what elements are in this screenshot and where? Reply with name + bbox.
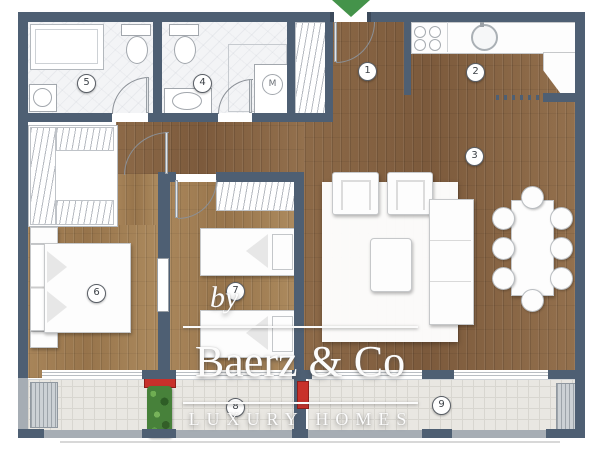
wall-bath4-closet: [287, 22, 295, 113]
armchair-back-line: [396, 180, 425, 210]
room-label-6: 6: [87, 284, 106, 303]
wall-top-left: [18, 12, 333, 22]
watermark-tagline: LUXURY HOMES: [172, 409, 430, 430]
wall-bath-bottom: [148, 113, 218, 122]
wall-kitchen-stub: [543, 93, 585, 102]
wall-bottom-post: [548, 370, 575, 379]
watermark-brand: Baerz & Co: [175, 334, 425, 390]
room-label-9: 9: [432, 396, 451, 415]
railing-post: [292, 429, 308, 438]
kitchen-sink-icon: [471, 24, 498, 51]
bedroom-7-wardrobe: [216, 181, 302, 211]
stove-burner-icon: [429, 26, 441, 38]
window: [42, 370, 142, 379]
balcony-edge-line: [60, 441, 560, 443]
watermark-by: by: [210, 281, 238, 315]
washbasin-bowl-icon: [33, 88, 52, 107]
wall-balcony-left: [18, 378, 28, 430]
room-label-5: 5: [77, 74, 96, 93]
wall-hall-bedroom7: [216, 172, 304, 182]
wall-entry-kitchen: [404, 22, 411, 95]
wall-left: [18, 12, 28, 378]
pillow-icon: [272, 234, 293, 270]
nightstand: [30, 331, 58, 348]
toilet-tank: [169, 24, 199, 36]
nightstand: [30, 227, 58, 244]
bedroom7-door-leaf: [175, 180, 178, 218]
toilet-bowl-icon: [126, 36, 148, 64]
walkin-closet-hatch-bottom: [56, 200, 114, 225]
watermark-rule-bottom: [183, 402, 418, 404]
corridor-door-leaf: [165, 132, 168, 174]
dining-chair: [550, 207, 573, 230]
room-label-3: 3: [465, 147, 484, 166]
wall-right: [575, 12, 585, 432]
bedroom6-door-leaf: [157, 258, 169, 312]
wall-bath-bottom: [252, 113, 333, 122]
dining-table: [511, 200, 554, 296]
walkin-closet-hatch-top: [56, 127, 114, 151]
wall-closet-entry: [325, 22, 333, 113]
dining-chair: [521, 289, 544, 312]
watermark-rule-top: [183, 326, 418, 328]
washbasin-bowl-icon: [172, 92, 202, 110]
sofa-cushion-line: [430, 281, 471, 282]
counter-divider-line: [447, 22, 448, 52]
railing-post: [142, 429, 176, 438]
sofa-cushion-line: [430, 240, 471, 241]
floor-plan: M: [0, 0, 600, 468]
washing-machine-icon: M: [262, 74, 283, 95]
room-label-1: 1: [358, 62, 377, 81]
window: [454, 370, 548, 379]
bathroom5-door-leaf: [146, 77, 149, 113]
wall-bath-bottom: [28, 113, 112, 122]
entrance-door-leaf: [334, 22, 337, 62]
railing-post: [422, 429, 452, 438]
dining-chair: [492, 267, 515, 290]
toilet-tank: [121, 24, 151, 36]
dining-chair: [492, 237, 515, 260]
stove-burner-icon: [414, 39, 426, 51]
kitchen-pass-dashed-line: [496, 95, 542, 100]
stove-burner-icon: [414, 26, 426, 38]
railing-post: [18, 429, 44, 438]
coffee-table: [370, 238, 412, 292]
stove-burner-icon: [429, 39, 441, 51]
room-label-4: 4: [193, 74, 212, 93]
sofa: [429, 199, 474, 325]
ac-unit-icon: [30, 382, 58, 428]
shower-tray-inner-line: [35, 29, 98, 64]
entrance-arrow-icon: [332, 0, 370, 17]
dining-chair: [550, 267, 573, 290]
room-label-2: 2: [466, 63, 485, 82]
entry-closet: [295, 22, 327, 115]
dining-chair: [550, 237, 573, 260]
dining-chair: [492, 207, 515, 230]
toilet-bowl-icon: [174, 36, 196, 64]
bathroom4-door-leaf: [249, 79, 252, 113]
wall-bath5-bath4: [153, 22, 162, 113]
wall-top-right: [371, 12, 585, 22]
wall-bottom-post: [422, 370, 454, 379]
wall-bottom-post: [142, 370, 176, 379]
dining-chair: [521, 186, 544, 209]
walkin-closet-hatch-left: [30, 127, 56, 225]
armchair-back-line: [341, 180, 371, 210]
bed-headboard: [30, 244, 45, 331]
railing-post: [546, 429, 585, 438]
